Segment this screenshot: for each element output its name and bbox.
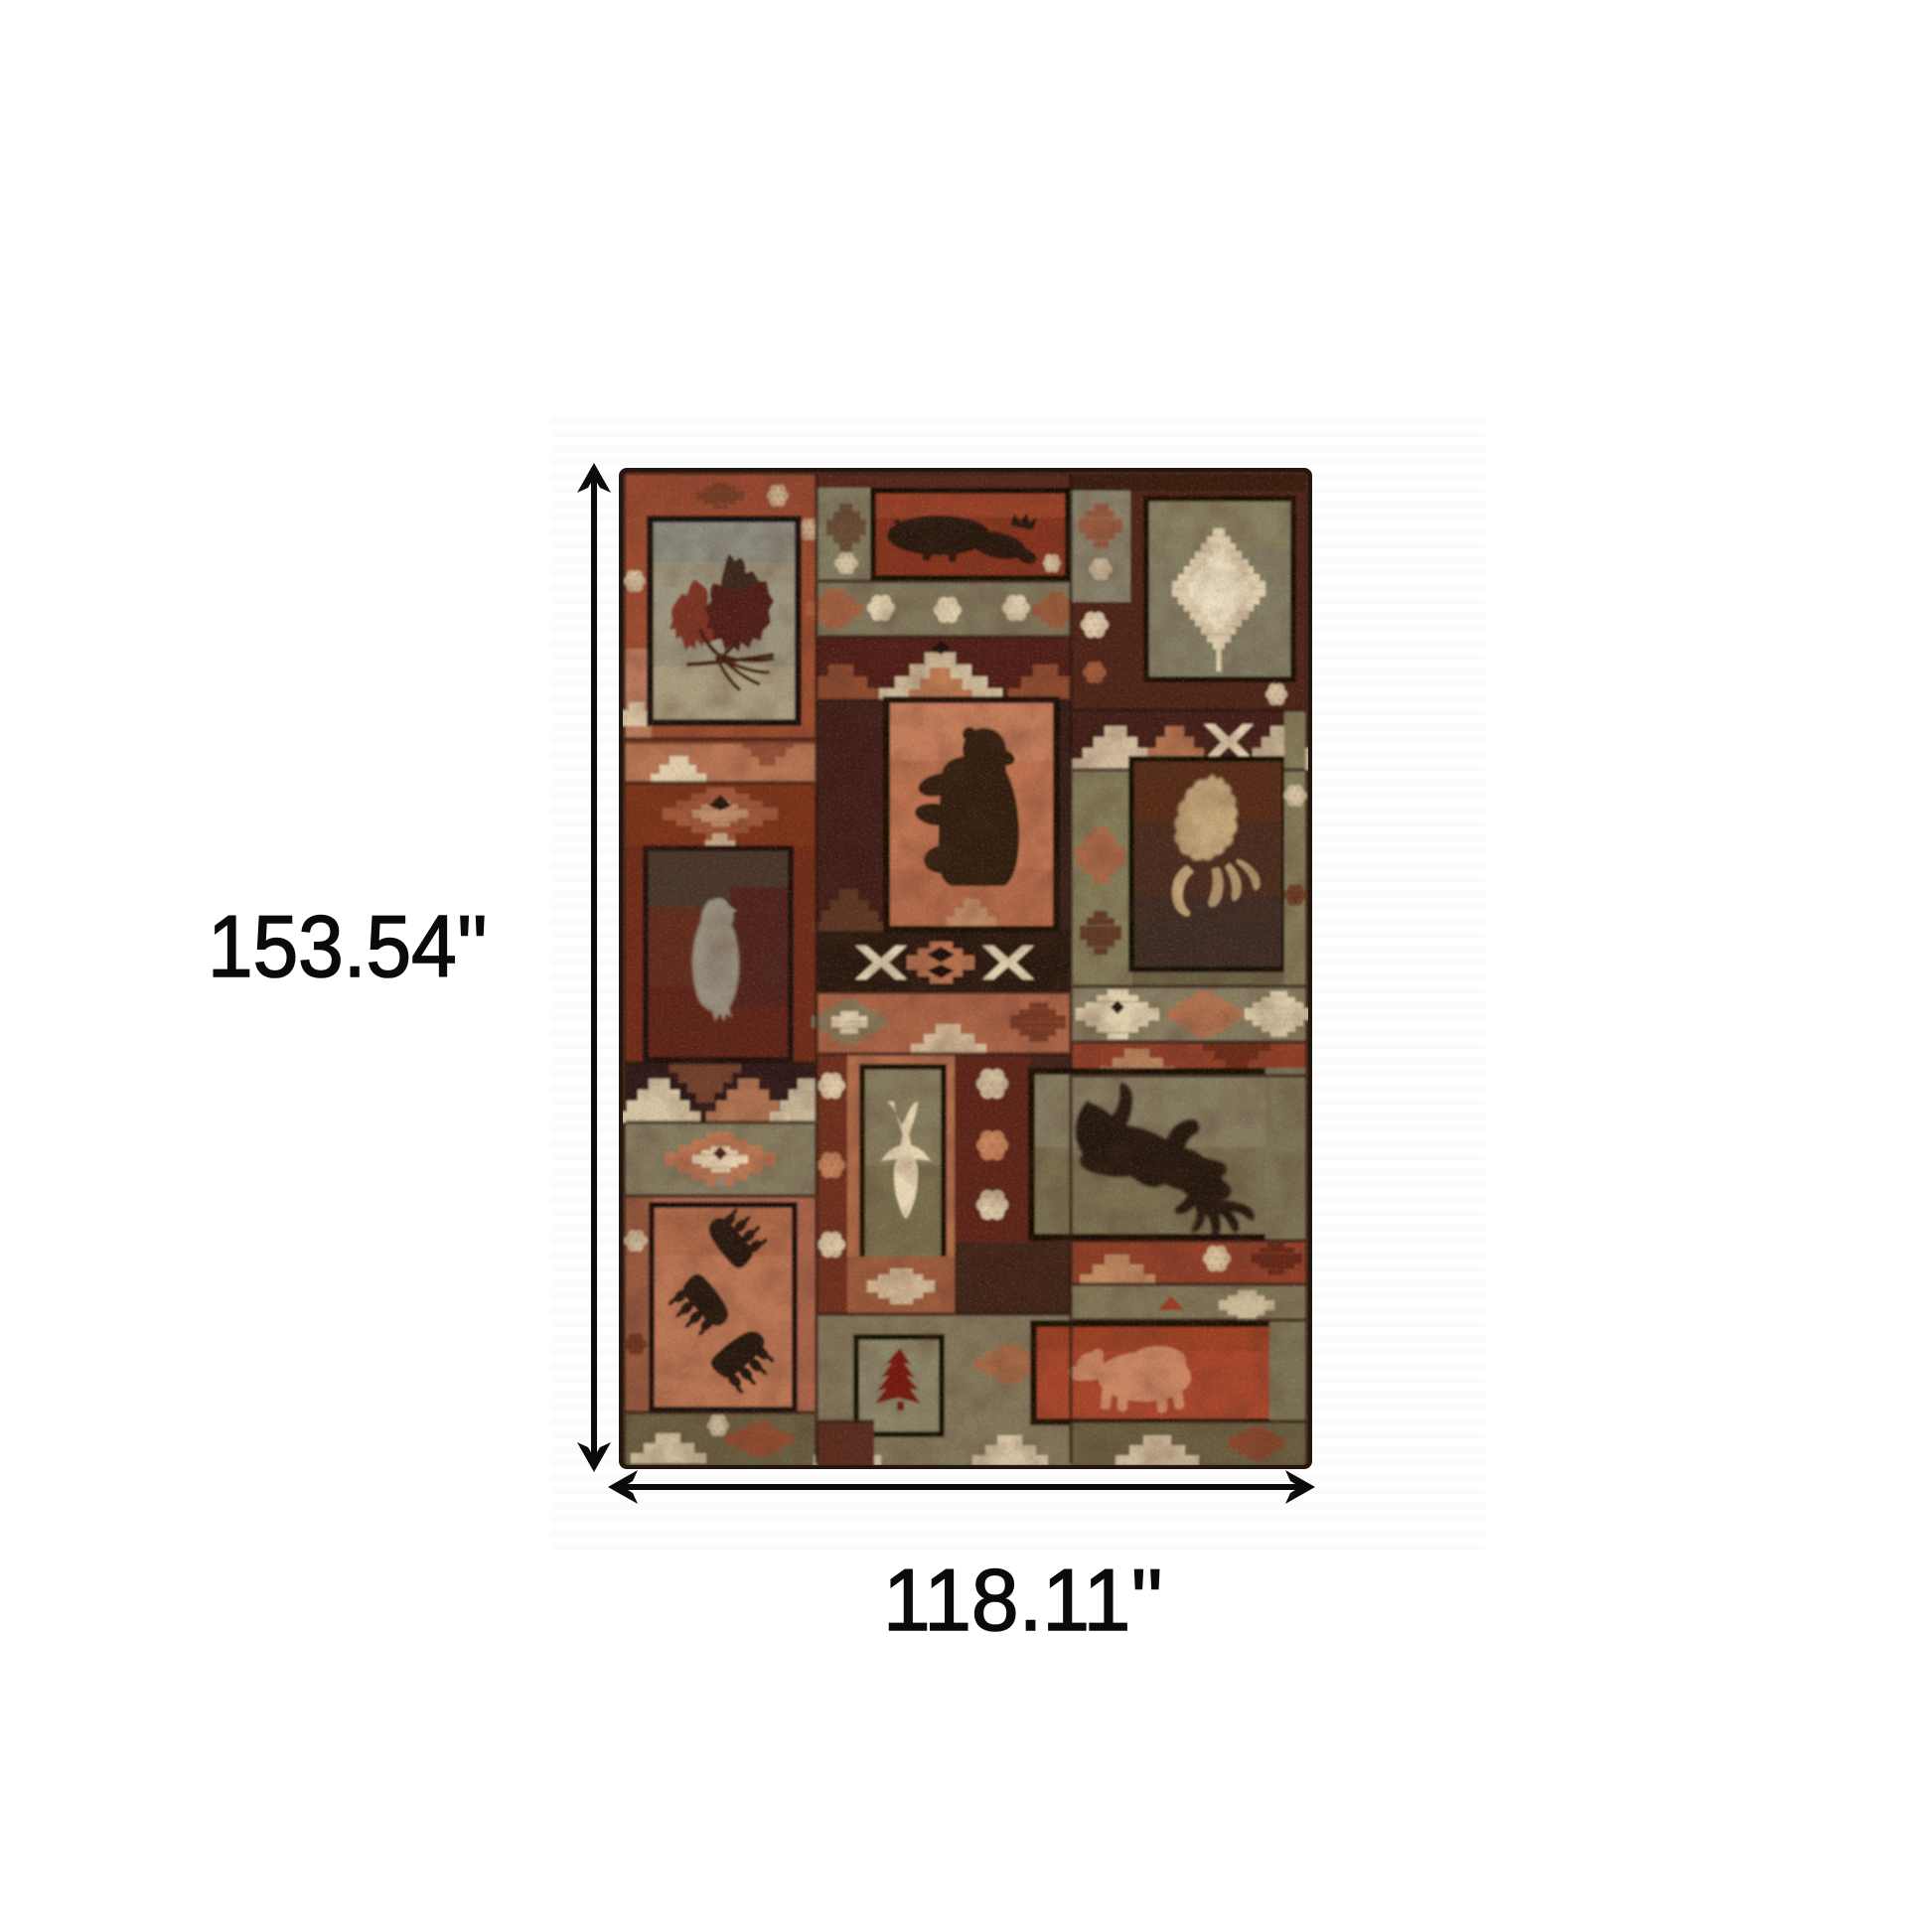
svg-text:118.11'': 118.11'': [883, 1551, 1163, 1649]
svg-text:153.54'': 153.54'': [208, 897, 488, 995]
